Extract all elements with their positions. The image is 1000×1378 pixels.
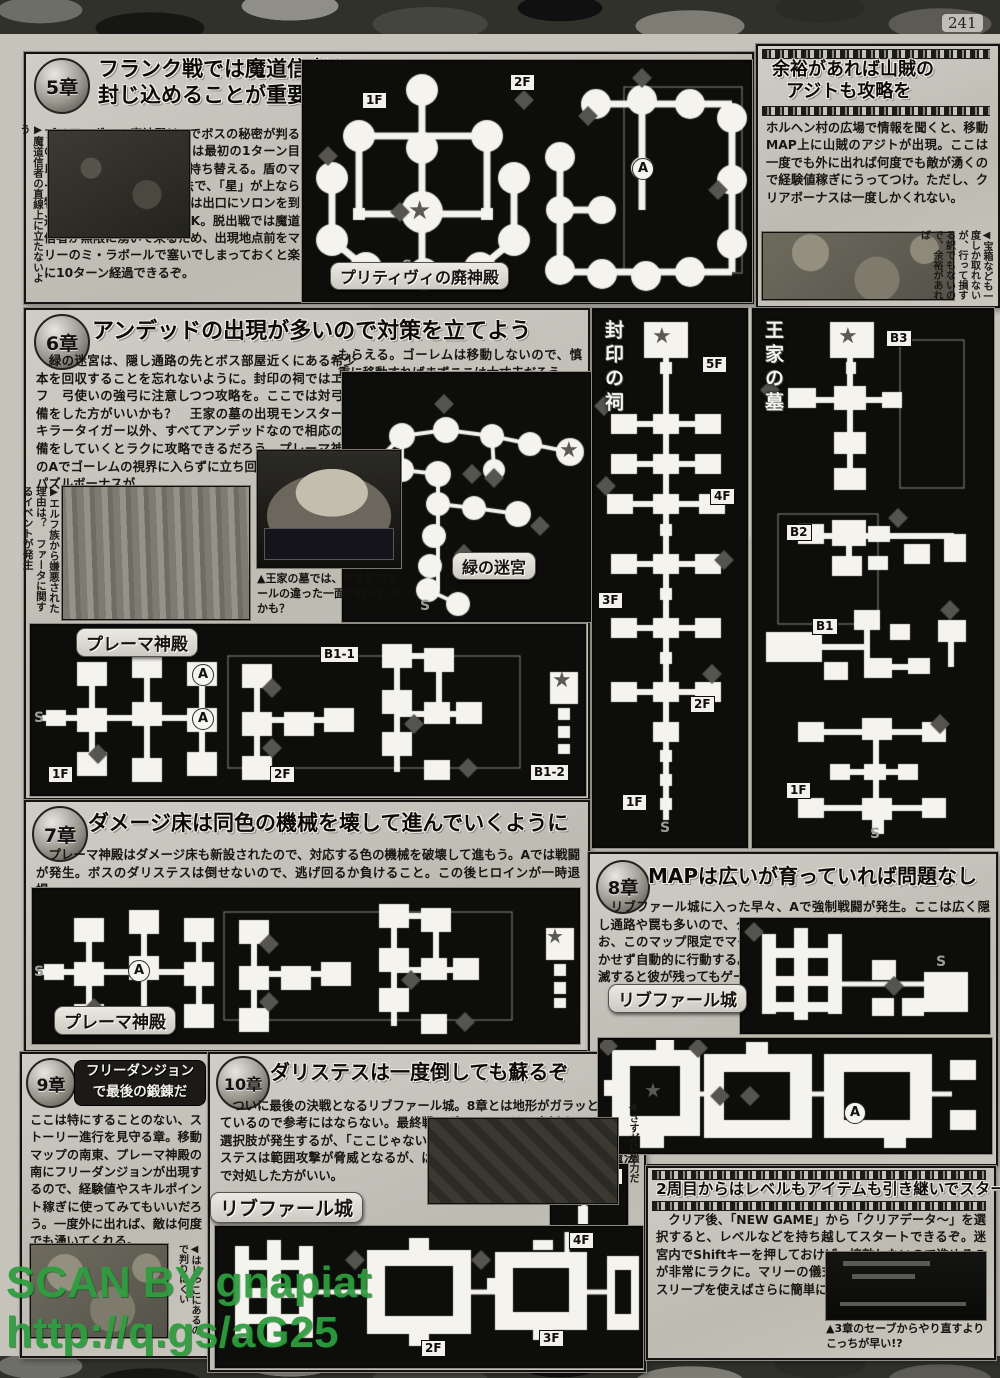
start-marker: S — [34, 964, 44, 980]
start-marker: S — [660, 820, 670, 836]
map-name-plate: リブファール城 — [210, 1192, 363, 1223]
sidebar-body: ホルヘン村の広場で情報を聞くと、移動MAP上に山賊のアジトが出現。ここは一度でも… — [766, 120, 988, 230]
bandit-hideout-sidebar: 余裕があれば山賊の アジトも攻略を ホルヘン村の広場で情報を聞くと、移動MAP上… — [756, 44, 1000, 308]
map-rivfall-upper: S — [740, 918, 990, 1034]
floor-label: 4F — [710, 488, 735, 505]
chapter9-badge: 9章 — [26, 1058, 76, 1108]
start-marker: S — [936, 954, 946, 970]
map-name-plate: 緑の迷宮 — [452, 552, 536, 580]
newgame-plus-section: 2周目からはレベルもアイテムも引き継いでスタート!! クリア後、「NEW GAM… — [646, 1166, 996, 1360]
floor-label: 3F — [598, 592, 623, 609]
floor-label: 1F — [622, 794, 647, 811]
chapter5-section: 5章 フランク戦では魔道信者を 封じ込めることが重要 ▶魔道信者の直線上に立たな… — [24, 52, 754, 304]
menu-text-bar — [852, 1274, 915, 1279]
chapter5-badge: 5章 — [34, 58, 90, 114]
dialog-window — [264, 528, 395, 560]
start-marker: S — [870, 826, 880, 842]
map-rivfall-lower: ★ A — [598, 1038, 992, 1154]
floor-label: B3 — [886, 330, 912, 347]
magazine-page: 241 5章 フランク戦では魔道信者を 封じ込めることが重要 ▶魔道信者の直線上… — [0, 0, 1000, 1378]
map-name-plate: プレーマ神殿 — [54, 1006, 176, 1035]
newgame-photo-caption: ▲3章のセーブからやり直すよりこっちが早い!? — [826, 1322, 988, 1352]
sidebar-title-line1: 余裕があれば山賊の — [772, 61, 934, 80]
floor-label: 2F — [421, 1340, 446, 1357]
map-ouke-tomb: 王家の墓 ★ B3 B2 B1 1F S — [752, 308, 994, 848]
sidebar-worldmap-screenshot — [762, 232, 954, 300]
scan-watermark-line1: SCAN BY gnapiat — [6, 1258, 372, 1308]
page-number: 241 — [942, 14, 983, 32]
ch6-photo-caption: ▲王家の墓では、ヤサ男のカールの違った一面が見られるかも？ — [257, 572, 407, 617]
map-name-vertical: 封印の祠 — [600, 320, 627, 416]
floor-label: 2F — [510, 74, 535, 91]
event-a-marker: A — [844, 1102, 866, 1124]
floor-label: 5F — [702, 356, 727, 373]
floor-label: 2F — [690, 696, 715, 713]
chapter7-section: 7章 ダメージ床は同色の機械を壊して進んでいくように プレーマ神殿はダメージ床も… — [24, 800, 590, 1052]
boss-star-marker: ★ — [546, 924, 564, 948]
floor-label: B2 — [786, 524, 812, 541]
chapter6-section: 6章 アンデッドの出現が多いので対策を立てよう 緑の迷宮は、隠し通路の先とボス部… — [24, 308, 590, 800]
ch6-forest-artwork — [62, 486, 250, 620]
floor-label: 1F — [786, 782, 811, 799]
map-name-plate: プレーマ神殿 — [76, 628, 198, 657]
boss-star-marker: ★ — [559, 438, 579, 463]
chapter8-title: MAPは広いが育っていれば問題なし — [648, 866, 977, 887]
map-name-plate: プリティヴィの廃神殿 — [330, 262, 509, 290]
map-fuuin-shrine: 封印の祠 ★ 5F 4F 3F 2F 1F S — [592, 308, 748, 848]
floor-label: B1-1 — [320, 646, 359, 663]
ch6-art-caption-vertical: ▶エルフ族から嫌悪された理由は？ ファータに関するイベントが発生 — [34, 486, 60, 622]
chapter9-title: フリーダンジョン で最後の鍛錬だ — [74, 1060, 206, 1106]
floor-label: B1 — [812, 618, 838, 635]
map-name-plate: リブファール城 — [608, 984, 747, 1013]
menu-text-bar — [840, 1302, 966, 1306]
chapter6-title: アンデッドの出現が多いので対策を立てよう — [92, 320, 531, 343]
event-a-marker: A — [192, 664, 214, 686]
sidebar-photo-caption-vertical: ◀宝箱なども一度しか取れないが、行って損する訳でもないので、余裕があれば — [956, 230, 992, 302]
event-a-marker: A — [632, 158, 654, 180]
ch5-photo-caption-vertical: ▶魔道信者の直線上に立たないよう — [28, 124, 44, 292]
ornament-row — [762, 106, 990, 116]
chapter9-title-line2: で最後の鍛錬だ — [93, 1084, 188, 1100]
sidebar-title-line2: アジトも攻略を — [786, 83, 911, 102]
ch6-karl-portrait-screenshot — [257, 450, 401, 568]
chapter10-title: ダリステスは一度倒しても蘇るぞ — [270, 1062, 568, 1083]
map-prema-ch7: S A ★ プレーマ神殿 — [32, 888, 580, 1044]
ch5-battle-screenshot — [48, 130, 190, 238]
boss-star-marker: ★ — [408, 196, 431, 226]
chapter7-title: ダメージ床は同色の機械を壊して進んでいくように — [88, 812, 568, 834]
event-a-marker: A — [128, 960, 150, 982]
newgame-title: 2周目からはレベルもアイテムも引き継いでスタート!! — [656, 1181, 1000, 1197]
camo-border-top — [0, 0, 1000, 34]
chapter7-body: プレーマ神殿はダメージ床も新設されたので、対応する色の機械を破壊して進もう。Aで… — [36, 846, 580, 886]
start-marker: S — [34, 710, 44, 726]
floor-label: 2F — [270, 766, 295, 783]
chapter8-section: 8章 MAPは広いが育っていれば問題なし リブファール城に入った早々、Aで強制戦… — [588, 852, 998, 1166]
rivfall8-upper-canvas — [742, 920, 988, 1032]
boss-star-marker: ★ — [552, 668, 572, 693]
floor-label: 4F — [569, 1232, 594, 1249]
scan-watermark-line2: http://q.gs/aG25 — [6, 1308, 338, 1358]
map-name-vertical: 王家の墓 — [760, 320, 787, 416]
boss-star-marker: ★ — [652, 324, 672, 349]
ouke-map-canvas — [754, 310, 992, 846]
start-marker: S — [420, 598, 430, 614]
menu-text-bar — [843, 1261, 930, 1266]
floor-label: 3F — [539, 1330, 564, 1347]
boss-star-marker: ★ — [644, 1078, 662, 1102]
chapter5-title-line2: 封じ込めることが重要 — [98, 84, 308, 106]
ornament-row — [762, 49, 990, 59]
event-a-marker: A — [192, 708, 214, 730]
map-prema-ch6: プレーマ神殿 S A A 1F 2F B1-1 B1-2 ★ — [30, 624, 586, 796]
map-pritivi: 1F 2F A ★ S プリティヴィの廃神殿 — [302, 60, 752, 302]
ornament-row — [652, 1201, 986, 1211]
ch10-dungeon-screenshot — [428, 1118, 618, 1204]
floor-label: 1F — [48, 766, 73, 783]
chapter9-body: ここは特にすることのない、ストーリー進行を見守る章。移動マップの南東、プレーマ神… — [30, 1112, 202, 1242]
ornament-row — [652, 1170, 986, 1180]
floor-label: 1F — [362, 92, 387, 109]
chapter9-title-line1: フリーダンジョン — [86, 1063, 194, 1079]
ch10-photo-caption-vertical: ◀さすがに強力だ — [624, 1102, 638, 1212]
newgame-menu-screenshot — [826, 1252, 986, 1320]
boss-star-marker: ★ — [838, 324, 858, 349]
floor-label: B1-2 — [530, 764, 569, 781]
